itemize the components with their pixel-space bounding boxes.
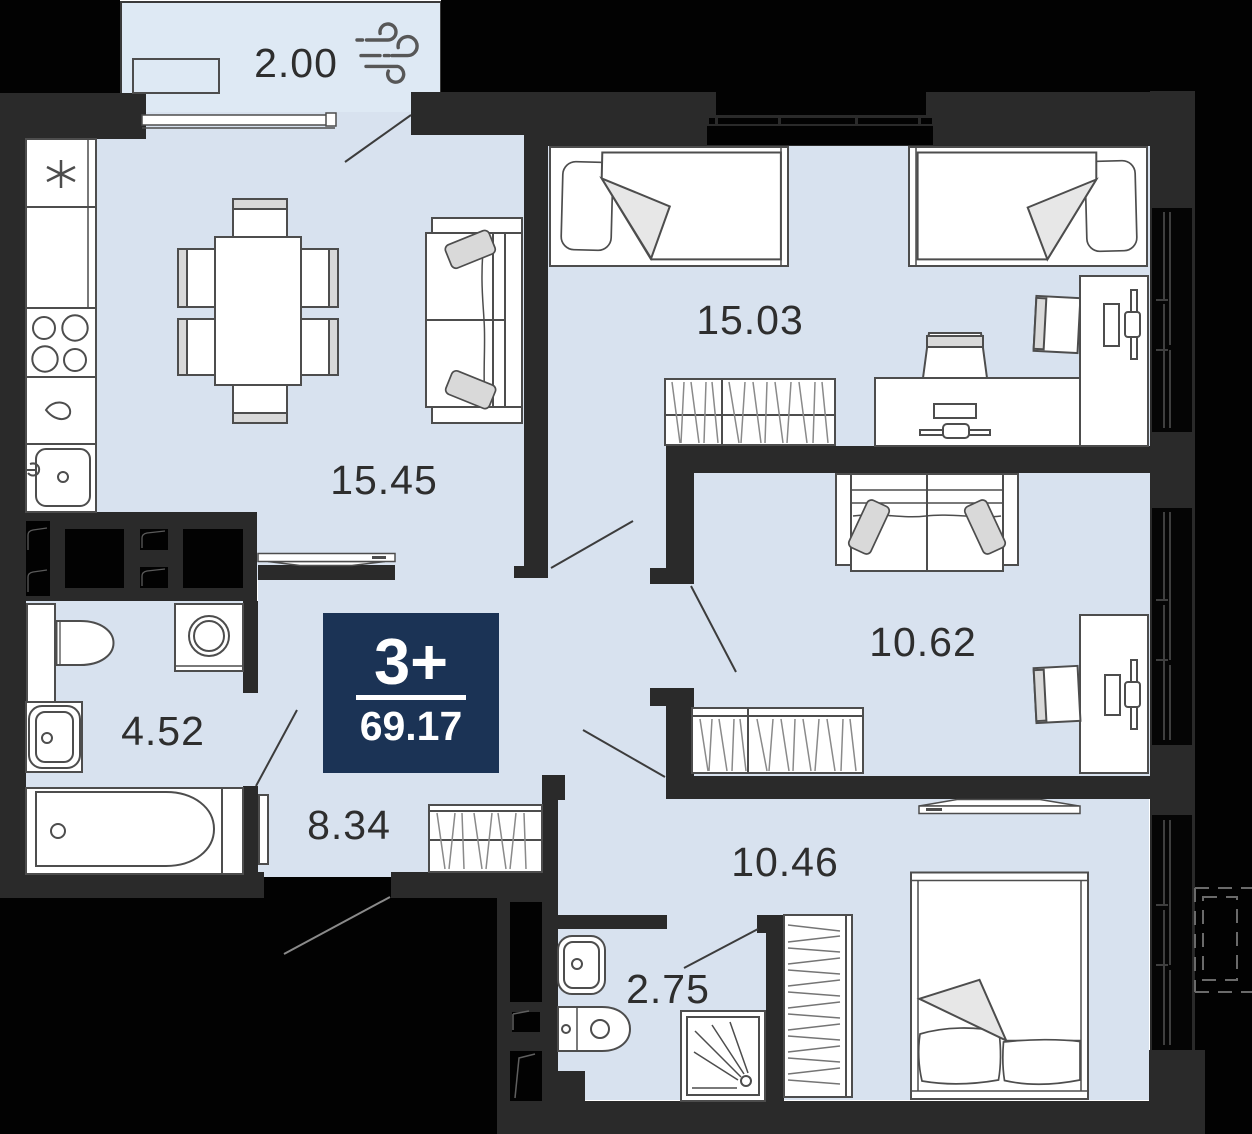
svg-text:3+: 3+ bbox=[374, 625, 448, 698]
svg-text:10.62: 10.62 bbox=[869, 619, 977, 665]
svg-text:4.52: 4.52 bbox=[121, 708, 205, 754]
svg-text:69.17: 69.17 bbox=[360, 703, 463, 749]
svg-text:2.75: 2.75 bbox=[626, 966, 710, 1012]
svg-text:10.46: 10.46 bbox=[731, 839, 839, 885]
svg-text:8.34: 8.34 bbox=[307, 802, 391, 848]
svg-text:2.00: 2.00 bbox=[254, 40, 338, 86]
svg-text:15.03: 15.03 bbox=[696, 297, 804, 343]
svg-text:15.45: 15.45 bbox=[330, 457, 438, 503]
